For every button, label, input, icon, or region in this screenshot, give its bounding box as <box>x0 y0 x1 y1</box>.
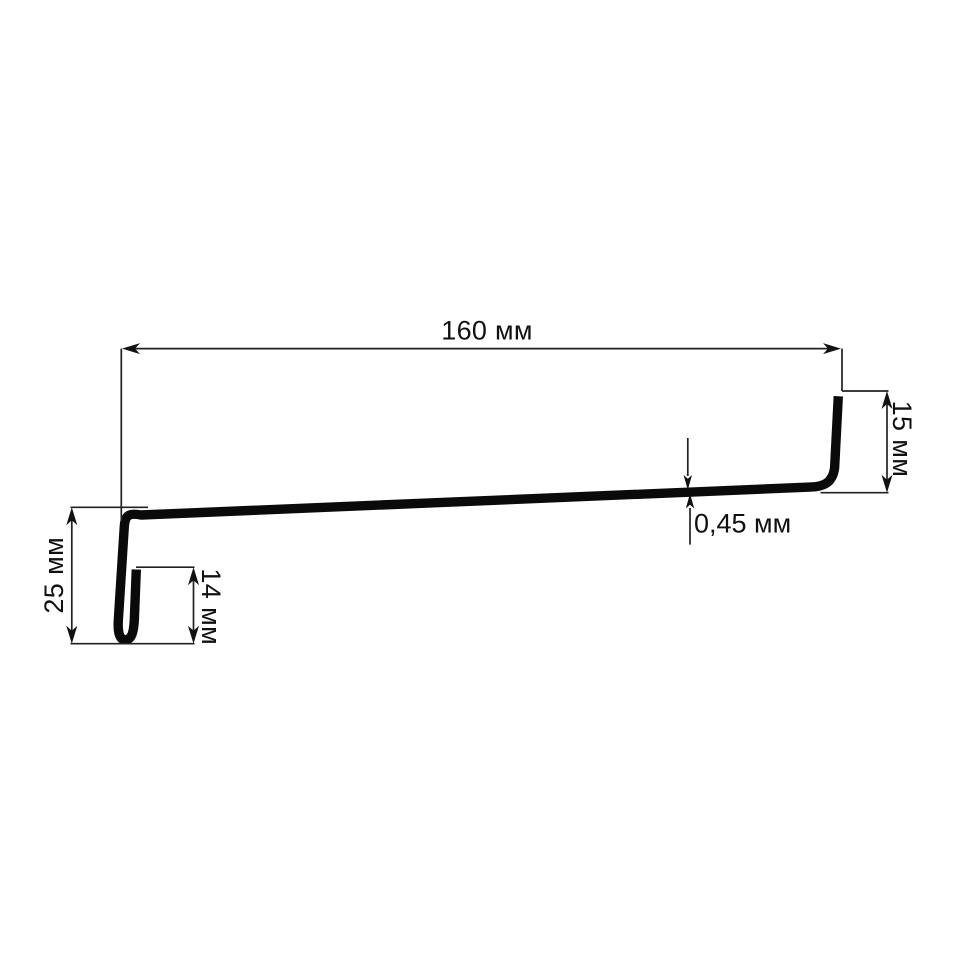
svg-text:160 мм: 160 мм <box>441 316 532 346</box>
svg-text:25 мм: 25 мм <box>39 537 69 614</box>
svg-text:15 мм: 15 мм <box>887 401 917 478</box>
svg-text:14 мм: 14 мм <box>196 568 226 645</box>
svg-text:0,45 мм: 0,45 мм <box>694 508 791 538</box>
